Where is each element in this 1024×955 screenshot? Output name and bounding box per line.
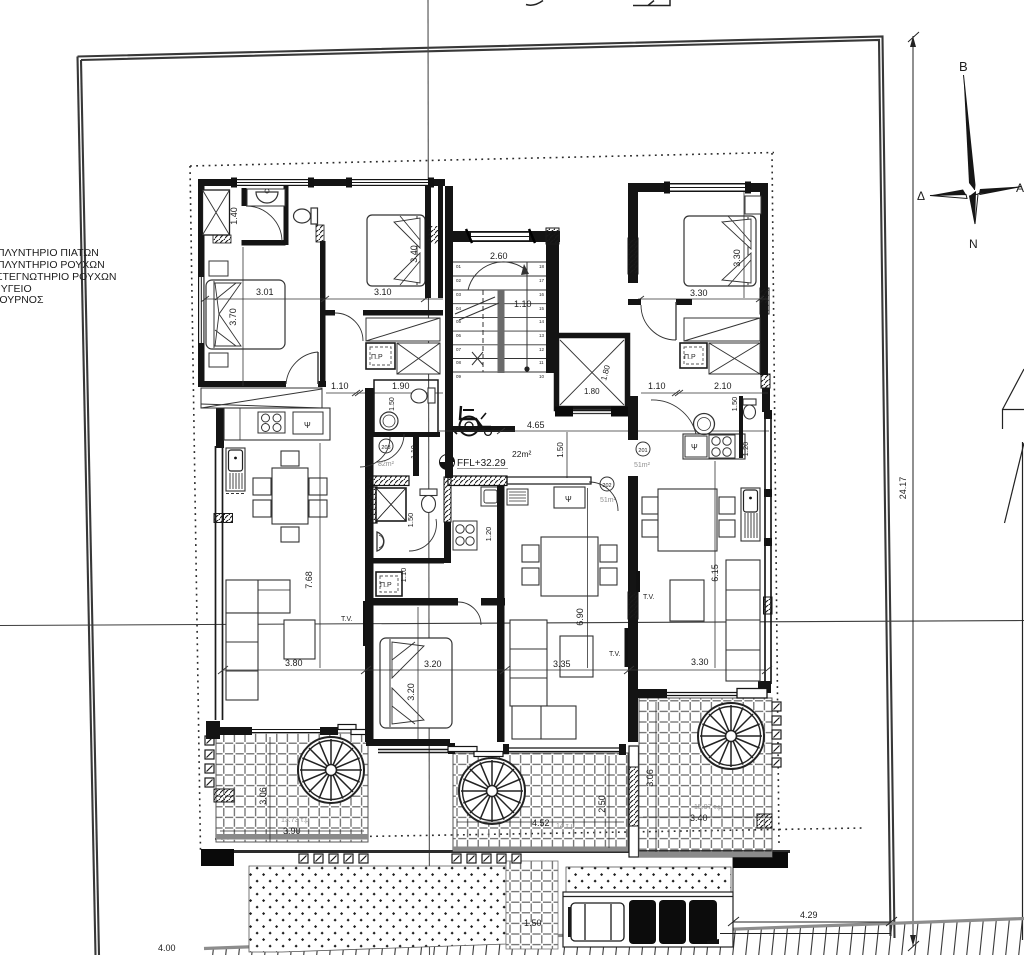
svg-text:14: 14 xyxy=(539,319,545,324)
svg-text:3.20: 3.20 xyxy=(406,683,416,701)
svg-text:1.40: 1.40 xyxy=(229,207,239,225)
svg-text:15.97 τ.μ: 15.97 τ.μ xyxy=(694,804,722,811)
svg-text:T.V.: T.V. xyxy=(341,616,352,623)
svg-text:17: 17 xyxy=(539,278,545,283)
svg-text:3.01: 3.01 xyxy=(256,287,274,297)
svg-text:03: 03 xyxy=(456,292,462,297)
svg-text:3.70: 3.70 xyxy=(228,308,238,326)
svg-text:22m²: 22m² xyxy=(512,449,532,459)
svg-text:08: 08 xyxy=(456,360,462,365)
svg-text:1.80: 1.80 xyxy=(584,387,600,396)
svg-text:13: 13 xyxy=(539,333,545,338)
svg-text:10: 10 xyxy=(539,374,545,379)
svg-text:1.10: 1.10 xyxy=(514,299,532,309)
svg-text:1.90: 1.90 xyxy=(392,381,410,391)
svg-text:3.20: 3.20 xyxy=(424,659,442,669)
svg-text:201: 201 xyxy=(638,448,647,454)
svg-text:06: 06 xyxy=(456,333,462,338)
svg-text:Δ: Δ xyxy=(917,189,925,203)
svg-text:Π.Ρ: Π.Ρ xyxy=(684,354,696,361)
svg-text:24.17: 24.17 xyxy=(898,477,908,500)
svg-text:T.V.: T.V. xyxy=(609,651,620,658)
svg-text:1.20: 1.20 xyxy=(484,527,493,542)
svg-text:3.40: 3.40 xyxy=(690,813,708,823)
svg-text:2.60: 2.60 xyxy=(490,251,508,261)
svg-text:05: 05 xyxy=(456,319,462,324)
svg-text:ΦΟΥΡΝΟΣ: ΦΟΥΡΝΟΣ xyxy=(0,294,44,306)
svg-text:7.68: 7.68 xyxy=(304,571,314,589)
svg-text:ΠΛΥΝΤΗΡΙΟ ΠΙΑΤΩΝ: ΠΛΥΝΤΗΡΙΟ ΠΙΑΤΩΝ xyxy=(0,247,99,259)
svg-text:01: 01 xyxy=(456,264,462,269)
svg-text:4.65: 4.65 xyxy=(527,420,545,430)
svg-text:3.30: 3.30 xyxy=(691,657,709,667)
svg-text:16: 16 xyxy=(539,292,545,297)
svg-text:3.10: 3.10 xyxy=(374,287,392,297)
svg-text:82m²: 82m² xyxy=(378,461,395,468)
svg-text:07: 07 xyxy=(456,347,462,352)
svg-text:1.50: 1.50 xyxy=(406,513,415,528)
svg-text:2.50: 2.50 xyxy=(597,795,607,813)
svg-text:1.20: 1.20 xyxy=(741,442,750,457)
svg-text:12: 12 xyxy=(539,347,545,352)
svg-text:1.50: 1.50 xyxy=(389,397,396,411)
svg-text:14 τ.μ: 14 τ.μ xyxy=(556,823,574,830)
svg-text:09: 09 xyxy=(456,374,462,379)
svg-text:FFL+32.29: FFL+32.29 xyxy=(457,458,506,469)
svg-text:3.30: 3.30 xyxy=(732,249,742,267)
svg-text:203: 203 xyxy=(381,445,390,451)
svg-text:02: 02 xyxy=(456,278,462,283)
svg-text:15: 15 xyxy=(539,306,545,311)
svg-text:Π.Ρ: Π.Ρ xyxy=(371,354,383,361)
svg-text:1.10: 1.10 xyxy=(411,445,418,459)
svg-text:3.06: 3.06 xyxy=(258,787,268,805)
svg-text:4.29: 4.29 xyxy=(800,910,818,920)
svg-text:T.V.: T.V. xyxy=(643,594,654,601)
svg-text:Π.Ρ: Π.Ρ xyxy=(380,582,392,589)
svg-text:ΠΛΥΝΤΗΡΙΟ ΡΟΥΧΩΝ: ΠΛΥΝΤΗΡΙΟ ΡΟΥΧΩΝ xyxy=(0,259,105,271)
svg-text:4.00: 4.00 xyxy=(158,943,176,953)
svg-text:A: A xyxy=(1016,181,1024,195)
svg-text:3.40: 3.40 xyxy=(409,245,419,263)
svg-text:51m²: 51m² xyxy=(600,497,617,504)
svg-text:1.10: 1.10 xyxy=(331,381,349,391)
svg-text:1.50: 1.50 xyxy=(556,442,565,458)
svg-text:6.90: 6.90 xyxy=(575,608,585,626)
svg-text:3.80: 3.80 xyxy=(285,658,303,668)
svg-text:04: 04 xyxy=(456,306,462,311)
svg-text:N: N xyxy=(969,237,978,251)
svg-text:B: B xyxy=(959,59,968,74)
svg-text:Ψ: Ψ xyxy=(691,443,698,452)
svg-text:1.50: 1.50 xyxy=(730,397,739,412)
svg-text:3.35: 3.35 xyxy=(553,659,571,669)
svg-text:Ψ: Ψ xyxy=(304,421,311,430)
svg-text:18: 18 xyxy=(539,264,545,269)
svg-text:ΣΤΕΓΝΩΤΗΡΙΟ ΡΟΥΧΩΝ: ΣΤΕΓΝΩΤΗΡΙΟ ΡΟΥΧΩΝ xyxy=(0,271,116,283)
svg-text:1.10: 1.10 xyxy=(648,381,666,391)
svg-text:3.30: 3.30 xyxy=(690,288,708,298)
svg-text:11: 11 xyxy=(539,360,544,365)
svg-text:Ψ: Ψ xyxy=(565,495,572,504)
svg-text:13.73 τ.μ: 13.73 τ.μ xyxy=(281,817,309,824)
svg-text:2.10: 2.10 xyxy=(714,381,732,391)
svg-text:4.52: 4.52 xyxy=(532,818,550,828)
svg-text:51m²: 51m² xyxy=(634,462,651,469)
svg-text:3.06: 3.06 xyxy=(645,769,655,787)
svg-text:1.50: 1.50 xyxy=(524,918,542,928)
svg-text:1.10: 1.10 xyxy=(399,568,408,583)
svg-text:6.15: 6.15 xyxy=(710,564,720,582)
